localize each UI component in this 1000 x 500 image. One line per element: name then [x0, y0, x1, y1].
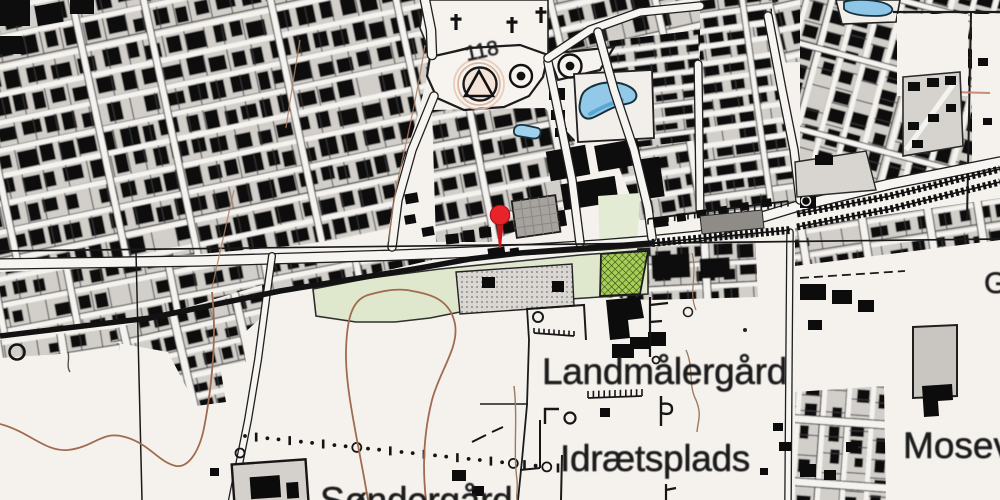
svg-text:G: G: [984, 267, 1000, 300]
svg-text:Landmålergård: Landmålergård: [542, 351, 787, 392]
svg-text:Søndergård: Søndergård: [320, 480, 512, 500]
svg-text:Idrætsplads: Idrætsplads: [560, 438, 750, 479]
svg-text:Mosev: Mosev: [903, 425, 1000, 466]
